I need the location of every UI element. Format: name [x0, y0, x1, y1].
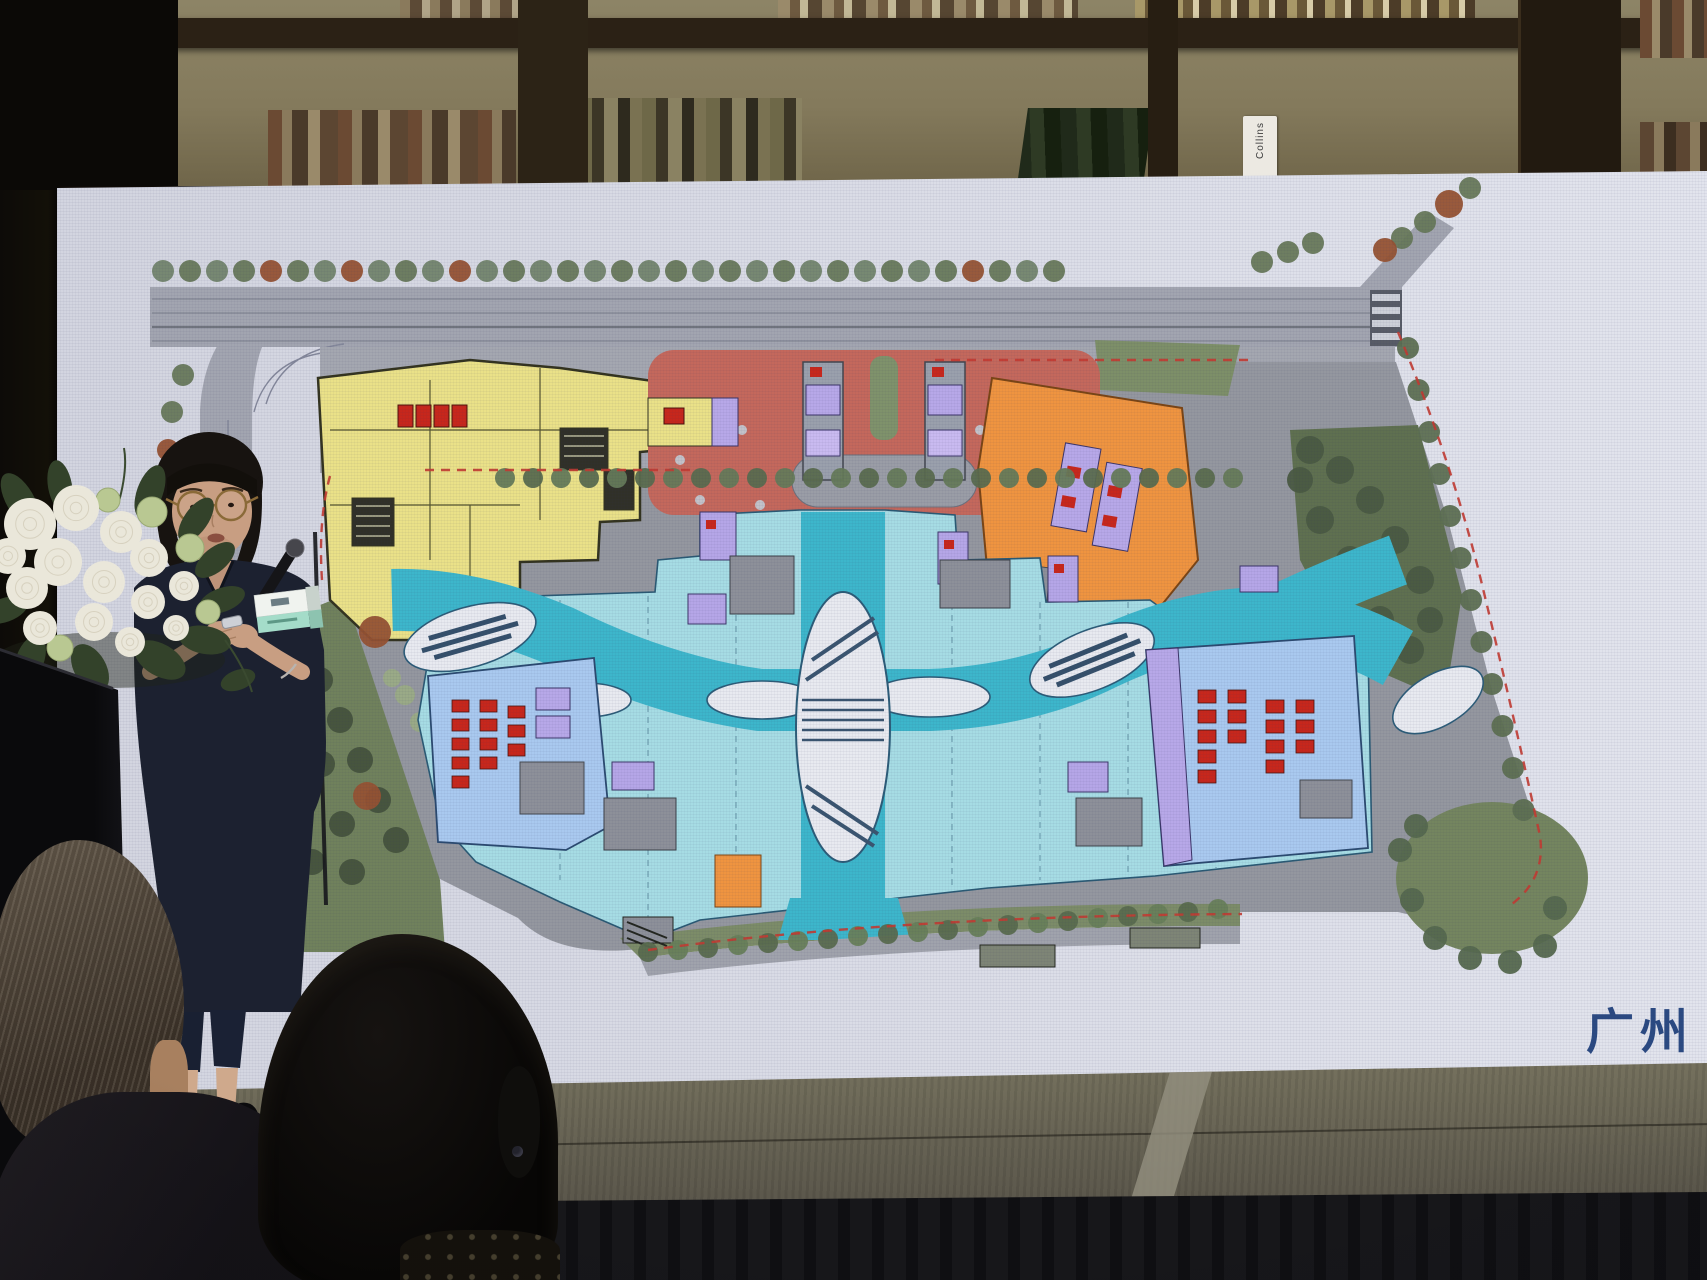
- plan-yellow-building: [318, 360, 662, 640]
- plan-blue-building-left: [428, 658, 610, 850]
- slide-caption: 广州: [1586, 1006, 1694, 1059]
- plan-boundary-dashed: [321, 332, 1541, 950]
- glasses: [166, 490, 258, 522]
- microphone: [254, 539, 324, 635]
- mouth: [208, 534, 225, 543]
- plan-atrium-ovals: [396, 589, 1494, 862]
- shelf-front-edge: [60, 186, 1707, 198]
- plan-tree-row-bottom: [638, 899, 1228, 962]
- plan-cores: [612, 512, 1278, 792]
- plan-accent-trees: [353, 238, 1397, 810]
- plan-gray-cores: [604, 556, 1142, 850]
- plan-roads: [150, 212, 1454, 660]
- bracelet: [281, 664, 296, 678]
- audience-center-ear: [498, 1066, 540, 1178]
- mic-cube-flag: [254, 586, 324, 636]
- plan-plaza: [320, 347, 1541, 951]
- plan-landscape: [258, 337, 1588, 974]
- plan-bottom-path: [623, 917, 1240, 976]
- bookshelf: Collins: [0, 0, 1707, 200]
- shelf-divider: [1518, 0, 1621, 192]
- shelf-beam: [120, 18, 1680, 48]
- shelf-divider: [1148, 0, 1178, 192]
- plan-mall-retail: [418, 510, 1372, 940]
- plan-dropoff-loop: [648, 350, 1100, 515]
- book-row: [1300, 116, 1464, 192]
- book-row: [1640, 122, 1707, 192]
- shelf-divider: [518, 0, 588, 192]
- plan-walkway: [392, 512, 1398, 940]
- plan-orange-building: [978, 378, 1198, 640]
- book-row-leaning: [1016, 108, 1154, 192]
- plan-tree-col-left: [157, 364, 199, 645]
- book-row: [1640, 0, 1707, 58]
- presenter-clicker: [221, 615, 243, 629]
- mic-stand: [315, 532, 326, 905]
- audience-earring: [512, 1146, 523, 1157]
- presentation-photo: Collins: [0, 0, 1707, 1280]
- pearl-necklace: [194, 574, 238, 583]
- book-row: [268, 110, 516, 192]
- book-row: [578, 98, 802, 192]
- audience-patterned-collar: [400, 1230, 560, 1280]
- plan-tree-row-inner: [495, 468, 1243, 488]
- book-spine-collins: Collins: [1243, 116, 1277, 188]
- dark-wall-corner: [0, 0, 178, 200]
- plan-small-orange-block: [715, 855, 761, 907]
- face: [172, 466, 252, 558]
- bracelet: [155, 664, 169, 677]
- plan-core-accents: [706, 520, 1064, 573]
- plan-blue-building-right: [1146, 636, 1368, 866]
